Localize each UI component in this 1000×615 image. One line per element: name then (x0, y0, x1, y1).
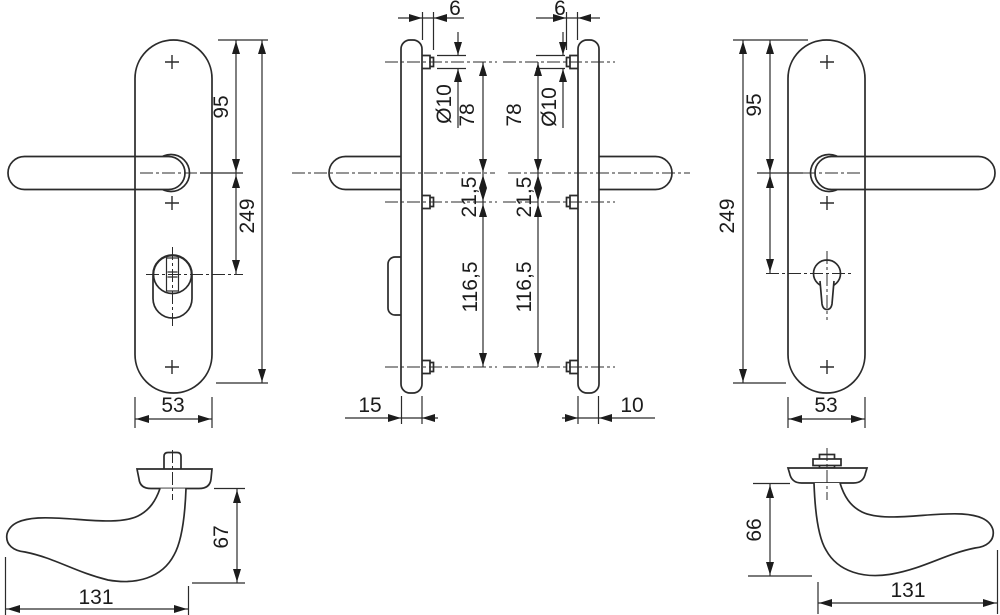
dim-label-21-5-right: 21,5 (513, 177, 536, 218)
dim-label-15: 15 (358, 394, 381, 417)
fixing-pins (422, 56, 434, 374)
door-handle-dimension-drawing: 95 249 53 6 (0, 0, 1000, 615)
dim-label-dia10-left: Ø10 (433, 84, 456, 124)
handle-profile-right: 66 131 (743, 448, 998, 614)
dim-label-95-right: 95 (743, 93, 766, 116)
cylinder-hole-oval (146, 247, 243, 328)
screw-marks (165, 55, 179, 374)
handle-grip-right (814, 483, 993, 576)
dimensions-front-left: 95 249 53 (135, 40, 268, 428)
dim-label-116-5-right: 116,5 (513, 262, 536, 313)
backplate-right (788, 40, 865, 393)
side-view-left: 6 Ø10 78 21,5 116,5 15 (292, 0, 497, 424)
handle-profile-left: 67 131 (6, 450, 246, 615)
side-view-right: 6 Ø10 78 21,5 116,5 10 (503, 0, 690, 424)
euro-cylinder-hole (766, 251, 854, 320)
dim-label-131-right: 131 (890, 579, 925, 602)
dim-label-66: 66 (743, 518, 766, 541)
screw-marks-right (820, 55, 834, 374)
technical-drawing-page: 95 249 53 6 (0, 0, 1000, 615)
backplate-side-right (578, 40, 599, 393)
dim-label-10: 10 (620, 394, 643, 417)
dim-label-131-left: 131 (78, 586, 113, 609)
backplate (135, 40, 212, 393)
handle-grip-left (7, 489, 186, 582)
dim-label-249-left: 249 (236, 198, 259, 233)
dim-label-116-5-left: 116,5 (459, 262, 482, 313)
dim-label-53-left: 53 (161, 394, 184, 417)
front-view-right: 95 249 53 (716, 40, 995, 428)
dim-label-6-right: 6 (554, 0, 566, 20)
dim-label-78-left: 78 (456, 103, 479, 126)
dim-label-dia10-right: Ø10 (538, 87, 561, 127)
dim-label-95-left: 95 (210, 95, 233, 118)
fixing-pins-right (567, 56, 579, 374)
handle-rose-left (137, 469, 212, 489)
dim-label-21-5-left: 21,5 (458, 177, 481, 218)
dim-label-67: 67 (210, 525, 233, 548)
dim-label-78-right: 78 (503, 103, 526, 126)
backplate-side (401, 40, 422, 393)
dim-label-249-right: 249 (716, 198, 739, 233)
dim-label-53-right: 53 (814, 394, 837, 417)
dim-label-6-left: 6 (449, 0, 461, 20)
front-view-left: 95 249 53 (8, 40, 268, 428)
